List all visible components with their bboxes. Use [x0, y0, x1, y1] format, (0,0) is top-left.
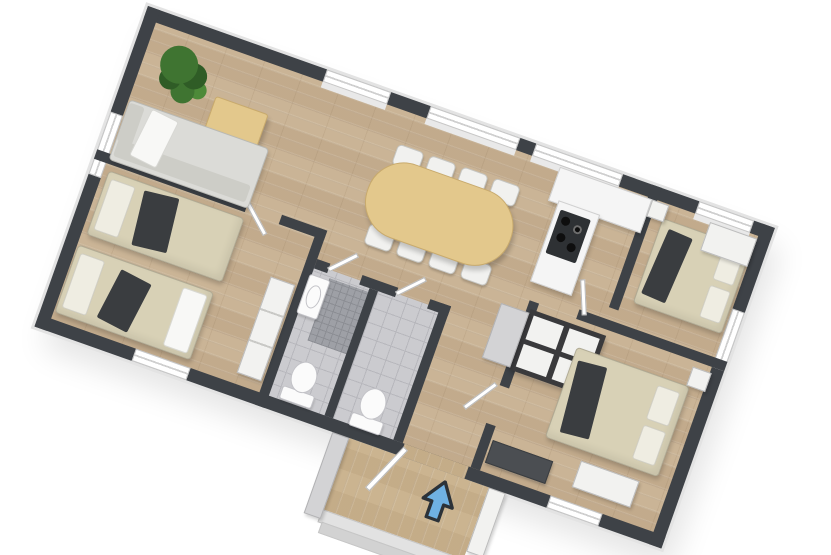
- burner-4: [565, 242, 576, 253]
- bed-br-pillow-1: [646, 385, 681, 427]
- wardrobe-pane-1: [525, 316, 564, 350]
- bed-br-throw: [560, 360, 608, 439]
- bed-left-b-throw: [97, 269, 152, 333]
- house: [35, 6, 775, 548]
- burner-3: [555, 232, 566, 243]
- bed-tr-pillow-2: [699, 285, 731, 324]
- floor-plan-scene: [0, 0, 831, 555]
- bed-left-a-throw: [131, 190, 179, 253]
- wash-basin-bowl: [303, 283, 324, 310]
- wardrobe-pane-3: [516, 344, 554, 377]
- burner-2: [572, 224, 583, 235]
- burner-1: [560, 216, 571, 227]
- bed-br-pillow-2: [632, 424, 667, 466]
